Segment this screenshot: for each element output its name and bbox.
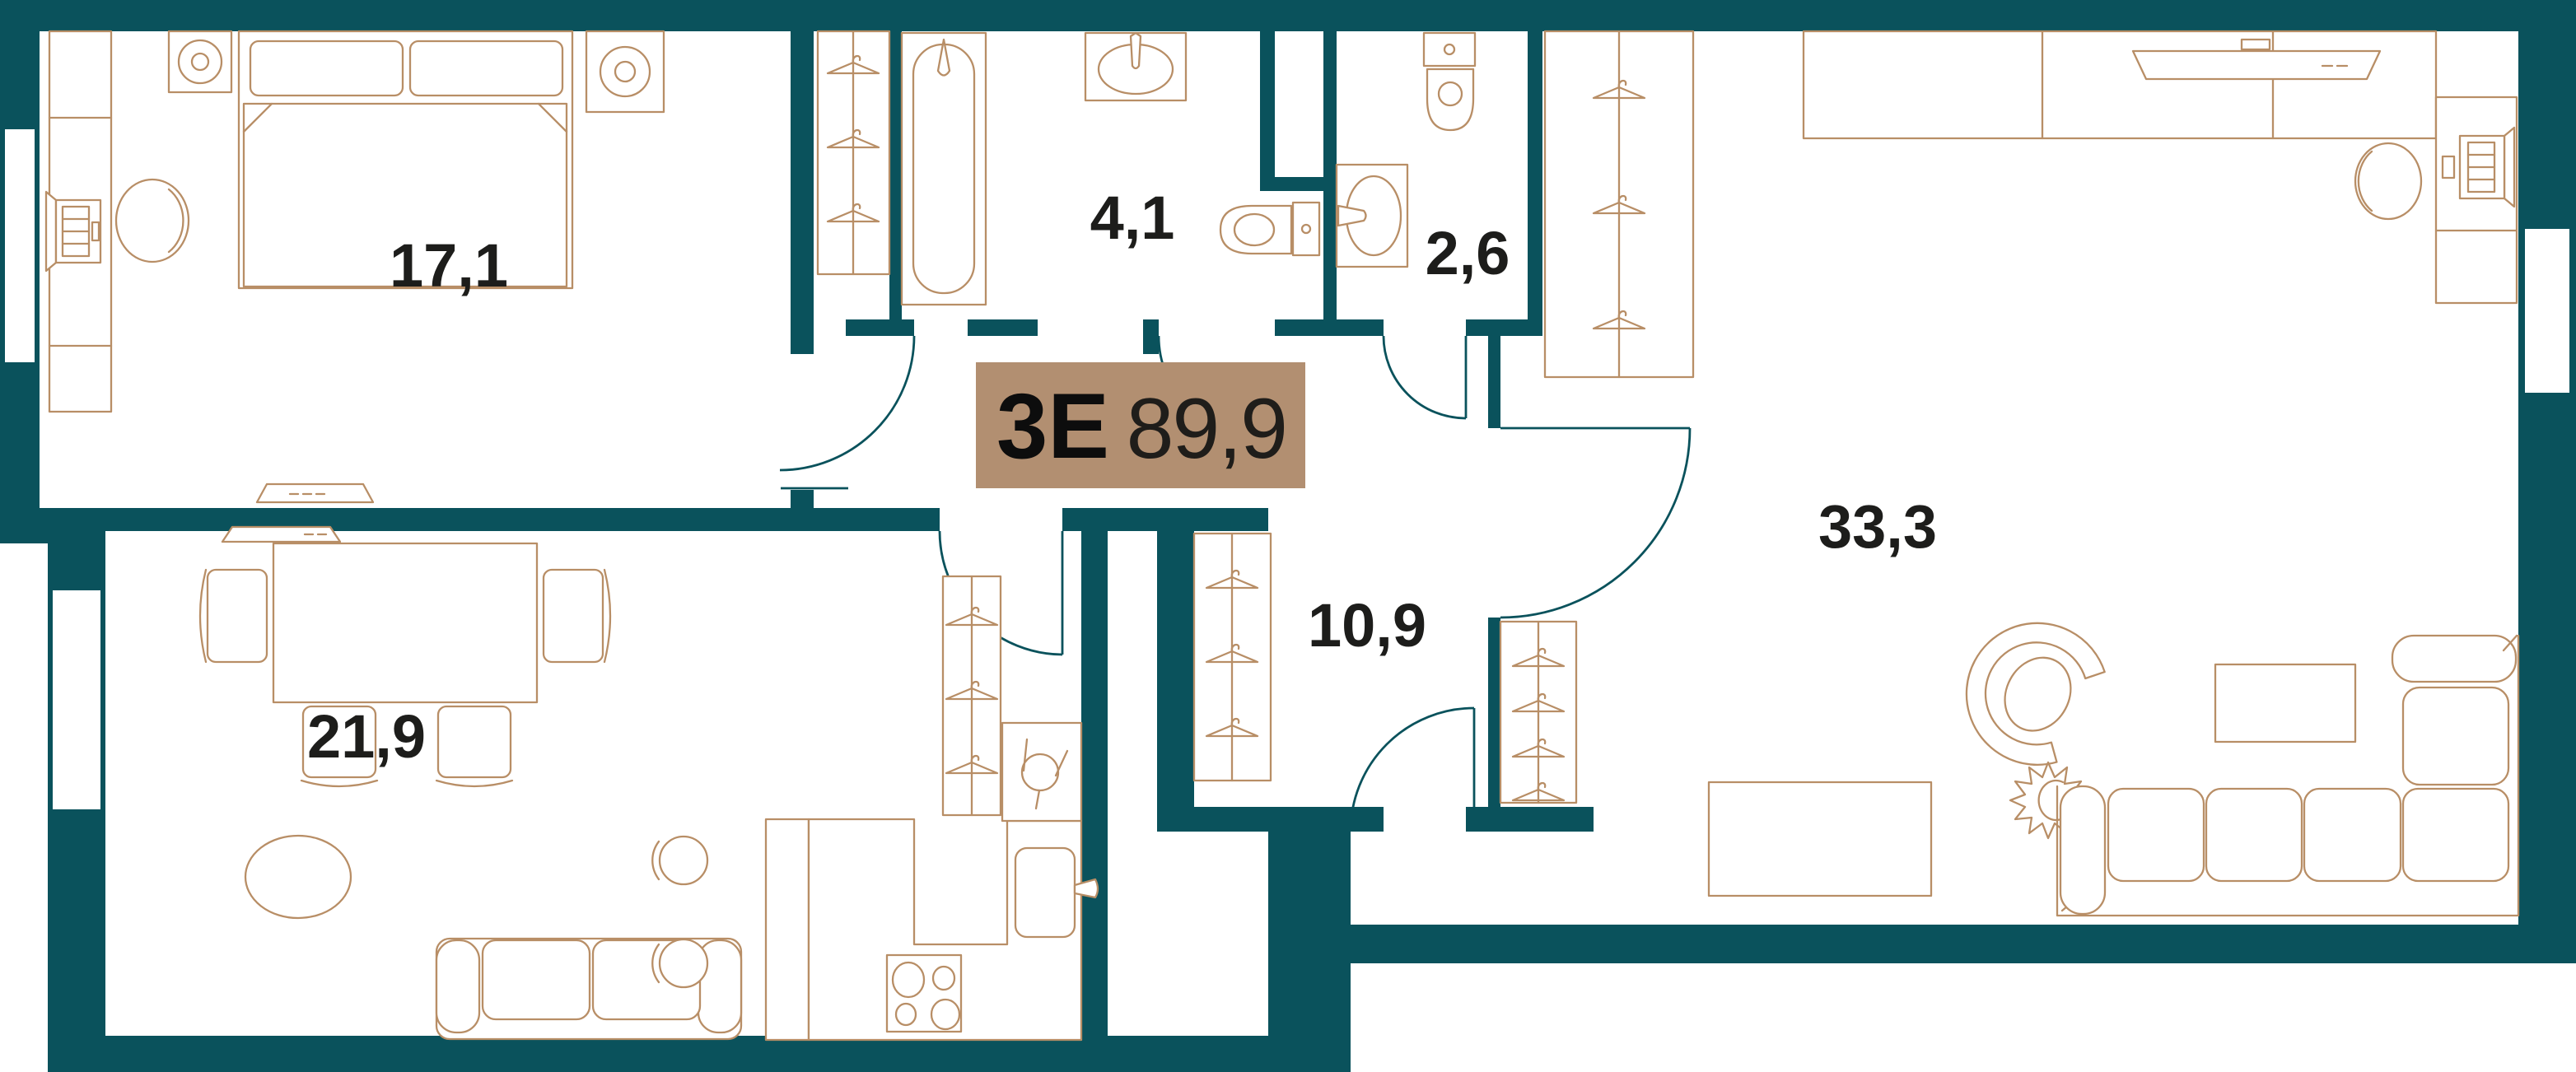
window-kitchen-living bbox=[53, 590, 100, 809]
console-table-symbol bbox=[1709, 782, 1931, 896]
unit-area-value: 89,9 bbox=[1127, 381, 1286, 477]
desk-chair-symbol bbox=[116, 179, 189, 262]
window-bedroom bbox=[5, 129, 35, 362]
dining-table-symbol bbox=[273, 543, 537, 702]
dining-chair-symbol bbox=[200, 570, 267, 662]
media-shelf-symbol bbox=[1804, 31, 2436, 138]
coffee-table-symbol bbox=[2215, 664, 2355, 742]
kitchen-cabinet-symbol bbox=[766, 819, 809, 1040]
door-hallway-living bbox=[1500, 428, 1690, 618]
nightstand-lamp-symbol bbox=[586, 31, 664, 112]
room-label-bedroom: 17,1 bbox=[390, 231, 508, 300]
wardrobe-symbol bbox=[1545, 31, 1693, 377]
laptop-icon bbox=[46, 192, 100, 271]
washbasin-symbol bbox=[1337, 165, 1407, 267]
washbasin-symbol bbox=[1085, 33, 1186, 100]
tv-bedroom-icon bbox=[257, 484, 373, 502]
room-label-living: 33,3 bbox=[1818, 492, 1937, 561]
tv-living-icon bbox=[222, 527, 340, 542]
unit-tag: 3Е 89,9 bbox=[976, 362, 1305, 488]
floor-plan-page: 17,1 4,1 2,6 10,9 21,9 33,3 3Е 89,9 bbox=[0, 0, 2576, 1072]
dining-chair-symbol bbox=[544, 570, 610, 662]
wardrobe-symbol bbox=[1500, 622, 1576, 803]
kitchen-stool-symbol bbox=[652, 837, 707, 884]
wardrobe-symbol bbox=[943, 576, 1001, 815]
door-bedroom bbox=[780, 336, 914, 488]
dining-chair-symbol bbox=[436, 706, 512, 786]
pouf-symbol bbox=[245, 836, 351, 918]
room-label-hallway: 10,9 bbox=[1308, 591, 1426, 660]
armchair-symbol bbox=[1942, 599, 2114, 780]
toilet-symbol bbox=[1220, 203, 1319, 255]
door-wc bbox=[1384, 336, 1466, 418]
stove-symbol bbox=[887, 955, 961, 1032]
room-label-kitchen-living: 21,9 bbox=[307, 702, 426, 771]
room-label-bathroom: 4,1 bbox=[1090, 184, 1175, 252]
kitchen-corner-unit-symbol bbox=[1002, 723, 1081, 821]
desk-symbol bbox=[2436, 97, 2517, 303]
wardrobe-symbol bbox=[1194, 534, 1271, 781]
living-furniture bbox=[1545, 31, 2518, 916]
unit-type-label: 3Е bbox=[996, 375, 1109, 478]
room-label-wc: 2,6 bbox=[1426, 219, 1510, 287]
desk-chair-symbol bbox=[2355, 143, 2421, 219]
wardrobe-niche-symbol bbox=[818, 31, 889, 274]
nightstand-lamp-symbol bbox=[169, 31, 231, 92]
toilet-symbol bbox=[1424, 33, 1475, 130]
floor-plan: 17,1 4,1 2,6 10,9 21,9 33,3 3Е 89,9 bbox=[0, 0, 2576, 1072]
bathroom-furniture bbox=[902, 33, 1319, 305]
bathtub-symbol bbox=[902, 33, 986, 305]
window-living bbox=[2525, 229, 2569, 393]
